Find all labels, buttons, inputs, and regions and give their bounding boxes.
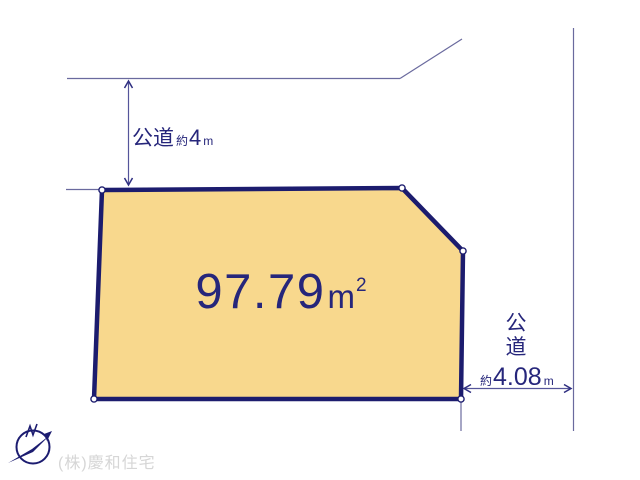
road-right-unit: m [544, 374, 554, 388]
road-right-value: 4.08 [493, 363, 542, 392]
vertex-marker [399, 185, 405, 191]
vertex-marker [458, 396, 464, 402]
road-top-value: 4 [189, 125, 201, 151]
road-top-label: 公道 約 4 m [132, 122, 213, 152]
vertex-marker [460, 248, 466, 254]
lot-plan-canvas: 公道 約 4 m 97.79 m 2 公 道 約 4.08 m (株)慶和住宅 [0, 0, 640, 480]
road-top-unit: m [203, 134, 213, 148]
road-right-approx: 約 [480, 372, 492, 389]
company-watermark: (株)慶和住宅 [58, 449, 156, 473]
vertex-marker [91, 396, 97, 402]
road-top-approx: 約 [176, 132, 188, 149]
area-value: 97.79 [195, 264, 325, 320]
road-top-name: 公道 [132, 122, 174, 152]
compass-icon [8, 424, 52, 464]
parcel-area-label: 97.79 m 2 [100, 264, 462, 320]
vertex-marker [99, 187, 105, 193]
road-edge-diagonal [400, 39, 462, 79]
road-right-dimension: 約 4.08 m [480, 363, 554, 392]
road-right-label: 公 道 [503, 312, 529, 360]
lot-plan-drawing [0, 0, 640, 480]
area-superscript: 2 [356, 275, 367, 297]
area-unit: m [328, 278, 356, 316]
